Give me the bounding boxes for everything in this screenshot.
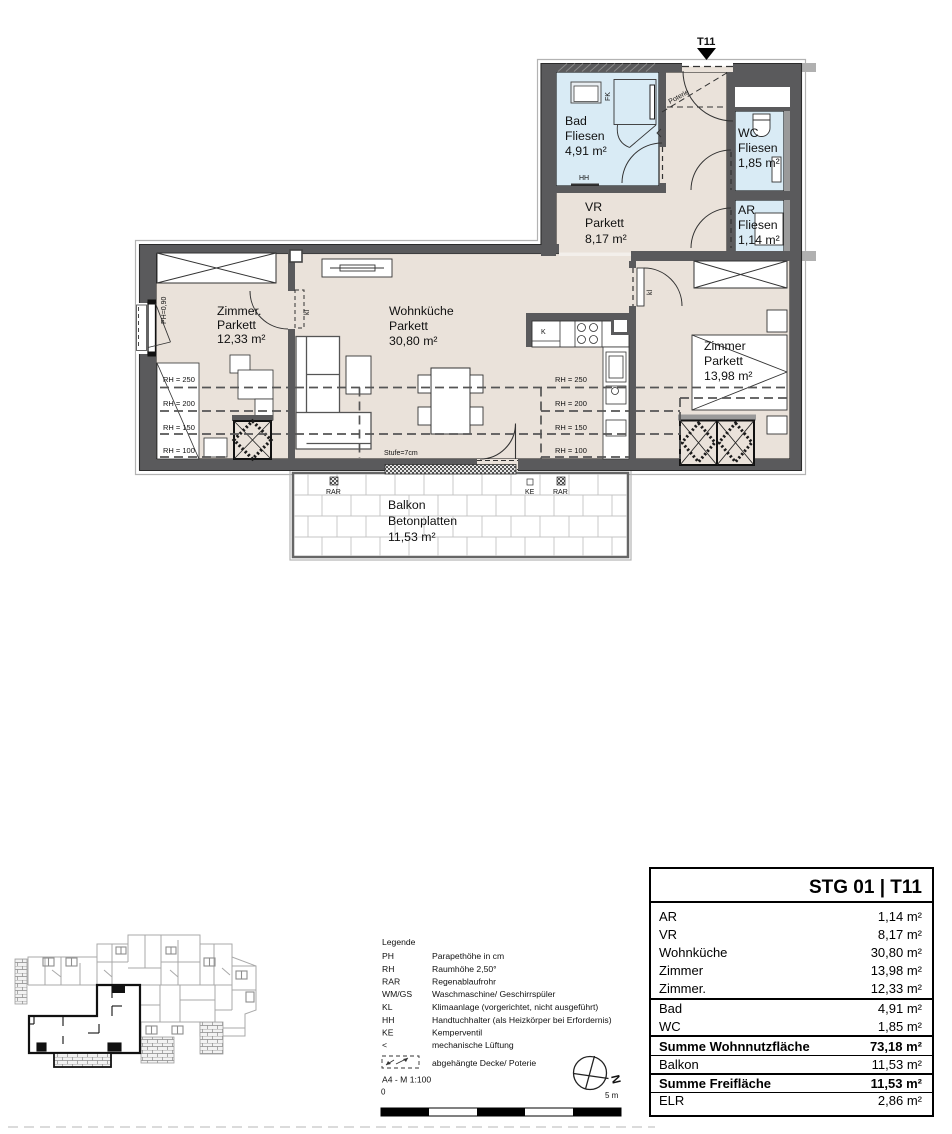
svg-text:Kemperventil: Kemperventil [432, 1028, 482, 1038]
svg-text:N: N [608, 1074, 624, 1086]
svg-text:RH: RH [382, 964, 394, 974]
svg-text:mechanische Lüftung: mechanische Lüftung [432, 1040, 514, 1050]
svg-text:KE: KE [382, 1028, 394, 1038]
svg-text:Handtuchhalter (als Heizkörper: Handtuchhalter (als Heizkörper bei Erfor… [432, 1015, 612, 1025]
svg-text:WM/GS: WM/GS [382, 989, 412, 999]
svg-text:0: 0 [381, 1088, 386, 1097]
svg-text:PH: PH [382, 951, 394, 961]
svg-text:A4 - M 1:100: A4 - M 1:100 [382, 1075, 431, 1085]
svg-text:Waschmaschine/ Geschirrspüler: Waschmaschine/ Geschirrspüler [432, 989, 556, 999]
svg-text:Klimaanlage (vorgerichtet, nic: Klimaanlage (vorgerichtet, nicht ausgefü… [432, 1002, 598, 1012]
svg-text:Legende: Legende [382, 937, 416, 947]
svg-text:Parapethöhe in cm: Parapethöhe in cm [432, 951, 504, 961]
svg-text:RAR: RAR [382, 977, 400, 987]
svg-text:KL: KL [382, 1002, 393, 1012]
svg-text:<: < [382, 1040, 387, 1050]
svg-text:Raumhöhe 2,50°: Raumhöhe 2,50° [432, 964, 497, 974]
svg-text:Regenablaufrohr: Regenablaufrohr [432, 977, 496, 987]
svg-text:HH: HH [382, 1015, 394, 1025]
svg-text:abgehängte Decke/ Poterie: abgehängte Decke/ Poterie [432, 1058, 536, 1068]
svg-text:5 m: 5 m [605, 1091, 619, 1100]
